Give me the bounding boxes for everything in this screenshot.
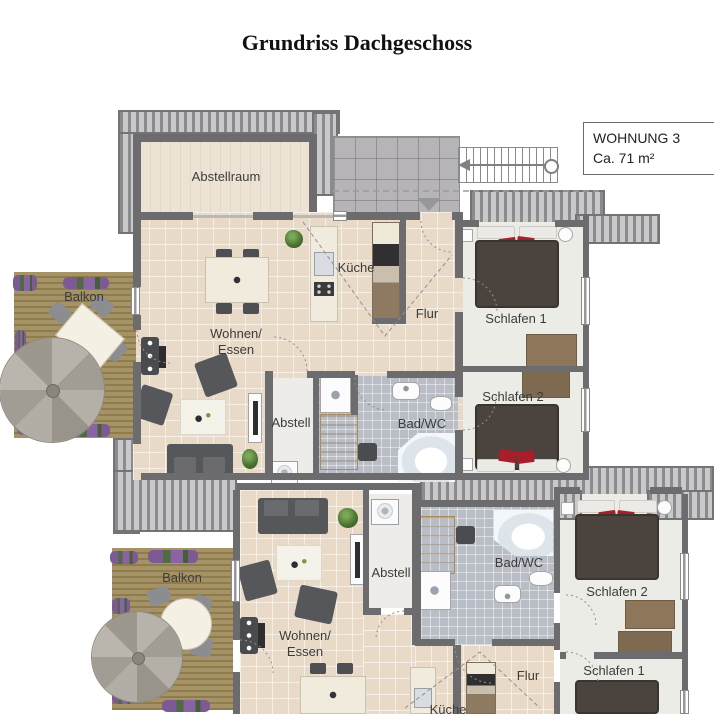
door-swing-arc [463, 278, 497, 312]
room-label-wohnen-essen-top: Wohnen/ Essen [210, 326, 262, 359]
room-label-schlafen2-top: Schlafen 2 [482, 389, 543, 405]
room-label-schlafen2-bottom: Schlafen 2 [586, 584, 647, 600]
room-label-flur-bottom: Flur [517, 668, 539, 684]
room-label-abstellraum: Abstellraum [192, 169, 261, 185]
door-swing-arc [421, 221, 452, 252]
annotation-overlay [0, 0, 714, 714]
room-label-kueche-bottom: Küche [430, 702, 467, 714]
door-swing-arc [240, 640, 273, 673]
room-label-schlafen1-bottom: Schlafen 1 [583, 663, 644, 679]
room-label-balkon-top: Balkon [64, 289, 104, 305]
room-label-bad-wc-bottom: Bad/WC [495, 555, 543, 571]
door-swing-arc [355, 378, 387, 410]
apartment-info-box: WOHNUNG 3 Ca. 71 m² [583, 122, 714, 175]
page-title: Grundriss Dachgeschoss [0, 30, 714, 56]
room-label-wohnen-essen-bottom: Wohnen/ Essen [279, 628, 331, 661]
apartment-area: Ca. 71 m² [593, 148, 705, 168]
room-label-abstell-bottom: Abstell [371, 565, 410, 581]
door-swing-arc [455, 646, 492, 683]
room-label-flur-top: Flur [416, 306, 438, 322]
room-label-balkon-bottom: Balkon [162, 570, 202, 586]
door-swing-arc [376, 611, 404, 639]
room-label-abstell-top: Abstell [271, 415, 310, 431]
door-swing-arc [273, 337, 307, 371]
apartment-name: WOHNUNG 3 [593, 128, 705, 148]
room-label-kueche-top: Küche [338, 260, 375, 276]
floor-plan: Abstellraum Balkon Wohnen/ Essen Küche F… [0, 0, 714, 714]
door-swing-arc [137, 330, 170, 363]
room-label-schlafen1-top: Schlafen 1 [485, 311, 546, 327]
room-label-bad-wc-top: Bad/WC [398, 416, 446, 432]
